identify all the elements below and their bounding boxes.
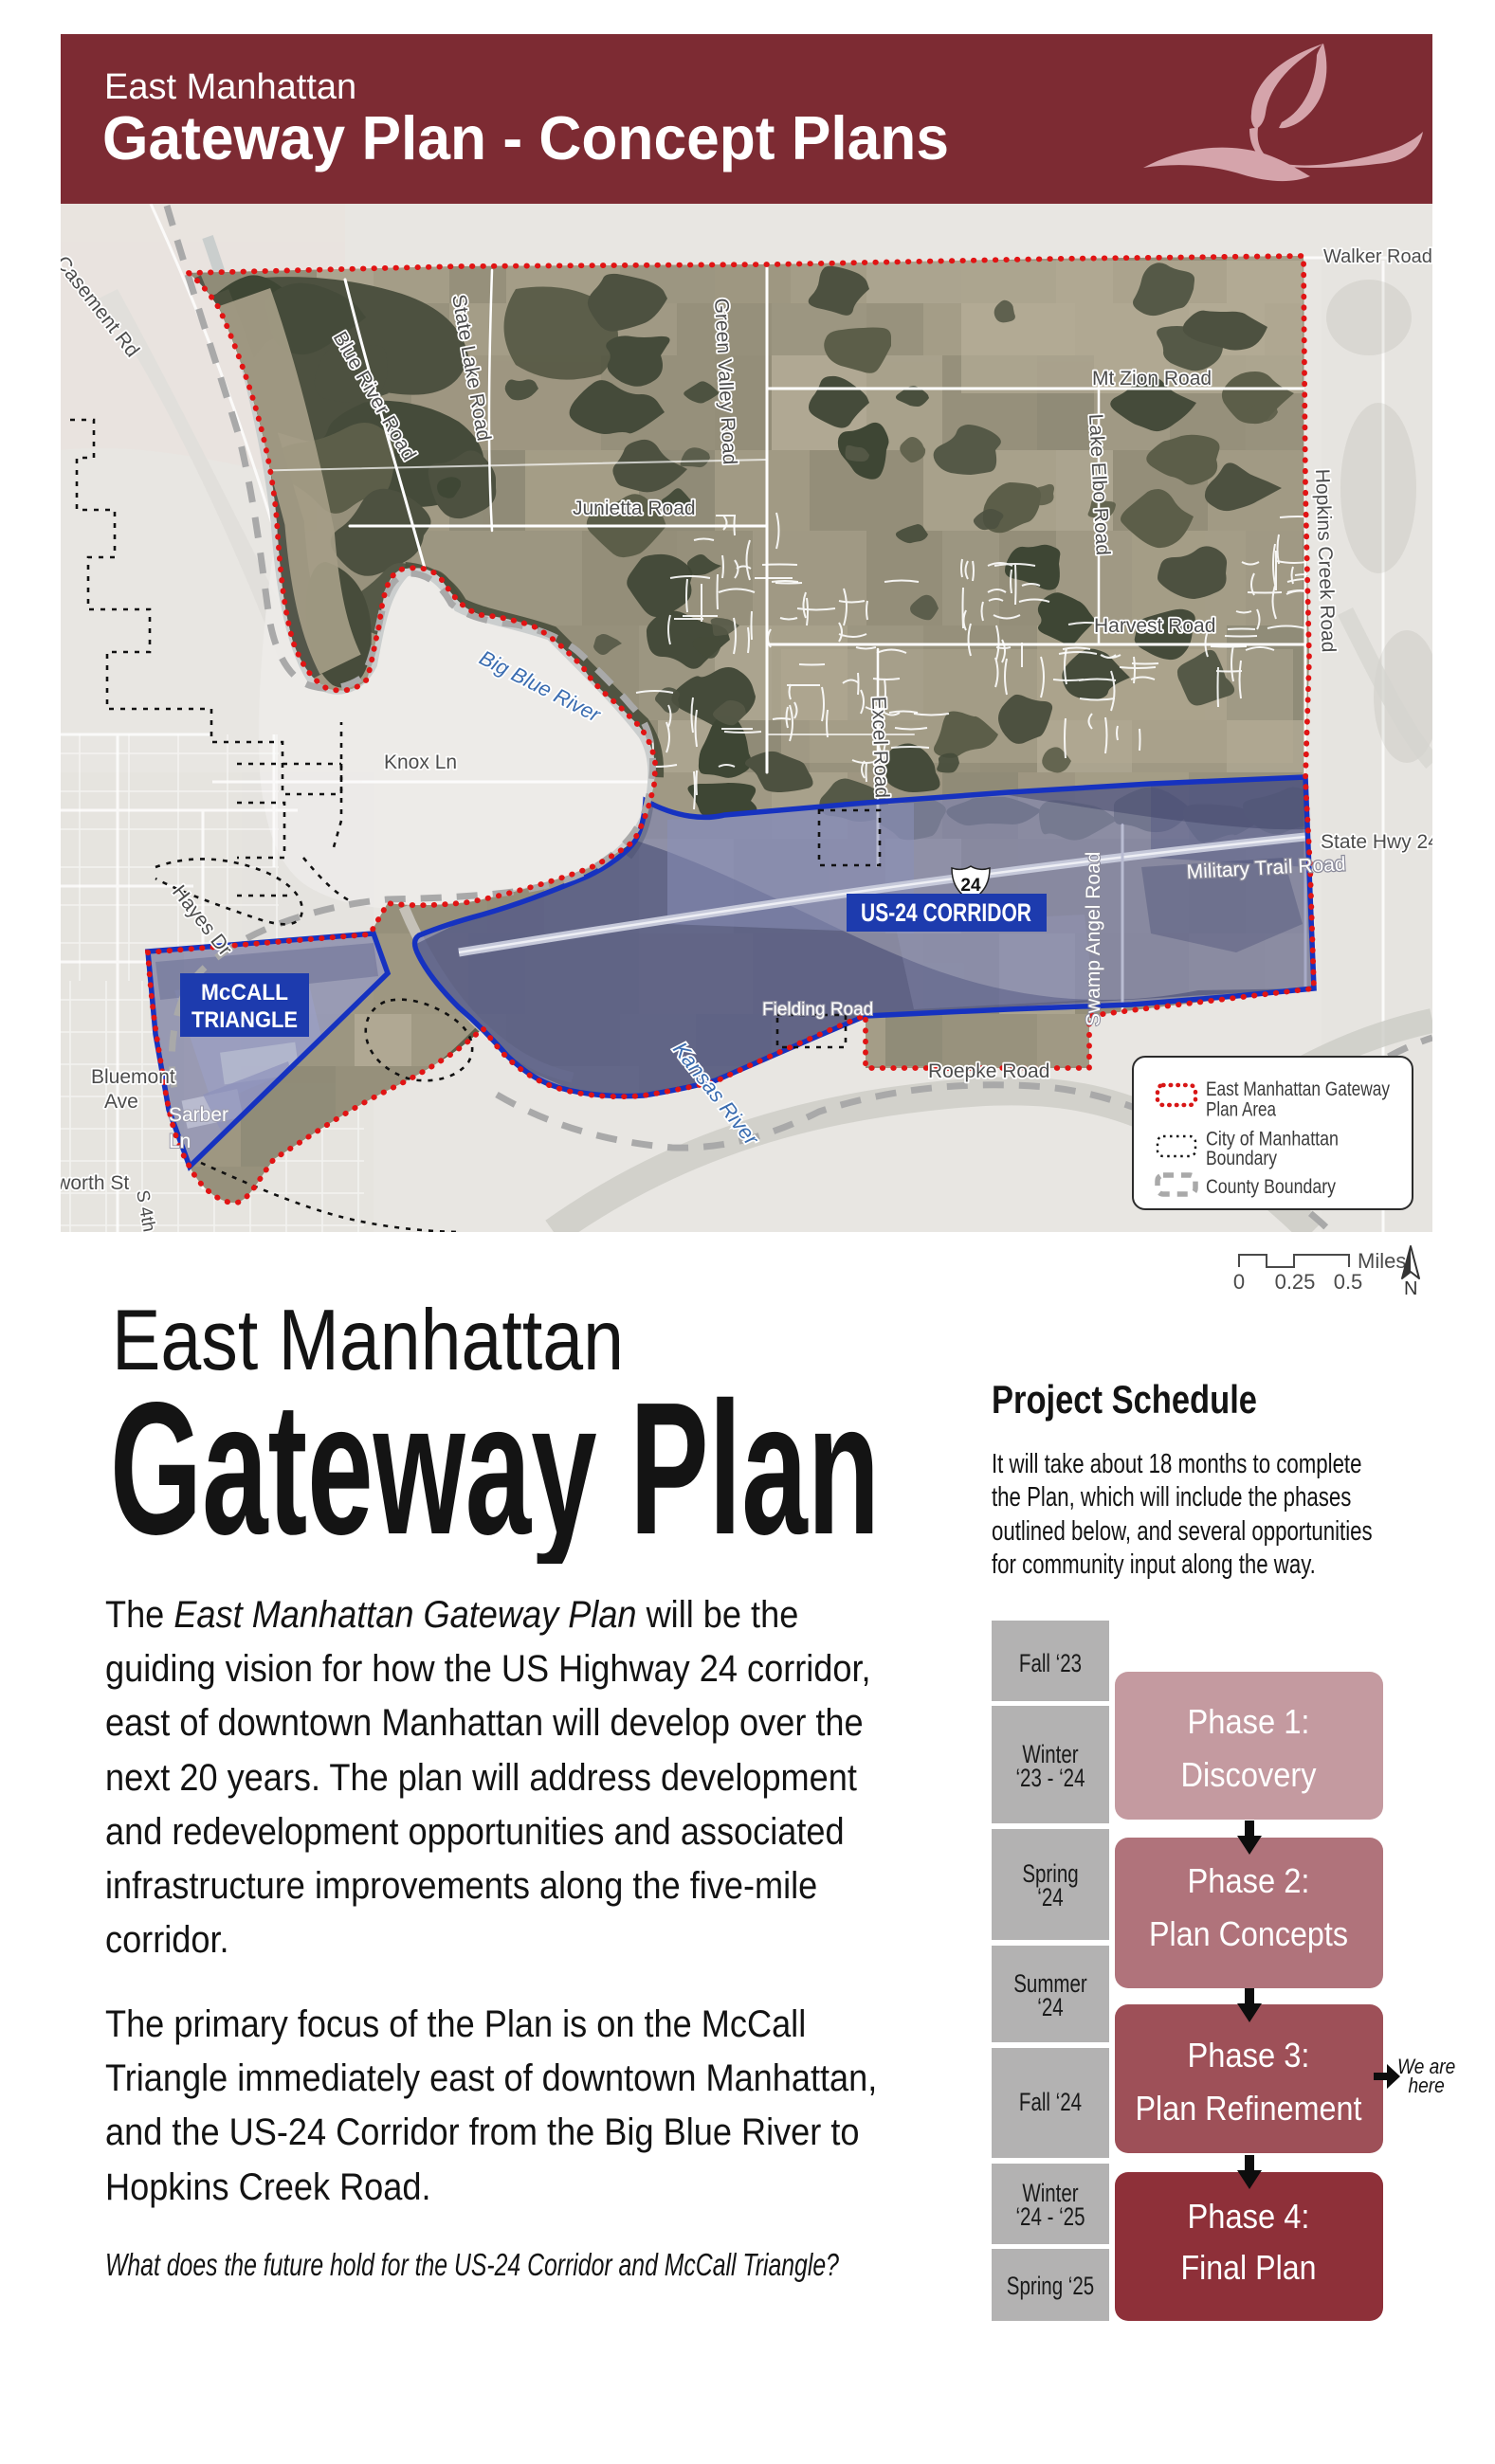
svg-text:Project Schedule: Project Schedule [992,1377,1257,1422]
svg-text:Junietta Road: Junietta Road [573,498,696,519]
svg-text:Discovery: Discovery [1181,1755,1317,1794]
svg-text:Walker Road: Walker Road [1323,246,1432,267]
svg-text:Gateway Plan: Gateway Plan [110,1365,880,1564]
svg-text:US-24 CORRIDOR: US-24 CORRIDOR [861,898,1031,927]
svg-text:N: N [1404,1278,1417,1297]
svg-text:Gateway Plan - Concept Plans: Gateway Plan - Concept Plans [102,106,949,172]
svg-text:0.25: 0.25 [1275,1270,1316,1294]
svg-text:Excel Road: Excel Road [867,696,893,798]
svg-text:State Hwy 24: State Hwy 24 [1321,831,1432,853]
svg-text:Harvest Road: Harvest Road [1094,615,1215,637]
svg-text:TRIANGLE: TRIANGLE [191,1007,298,1033]
svg-text:24: 24 [960,876,981,896]
svg-text:Boundary: Boundary [1206,1148,1277,1169]
svg-text:Swamp Angel Road: Swamp Angel Road [1083,852,1104,1026]
svg-text:Final Plan: Final Plan [1181,2248,1317,2287]
svg-text:Plan Refinement: Plan Refinement [1136,2089,1362,2128]
svg-text:Phase 1:: Phase 1: [1188,1702,1310,1741]
svg-text:0: 0 [1233,1270,1245,1294]
svg-text:Fielding Road: Fielding Road [762,1000,873,1020]
svg-text:East Manhattan Gateway: East Manhattan Gateway [1206,1078,1390,1100]
svg-text:Roepke Road: Roepke Road [928,1060,1049,1082]
svg-text:Phase 4:: Phase 4: [1188,2197,1310,2236]
svg-text:Plan Concepts: Plan Concepts [1149,1914,1348,1953]
svg-text:County Boundary: County Boundary [1206,1176,1336,1198]
svg-text:Plan Area: Plan Area [1206,1099,1276,1121]
svg-text:Mt Zion Road: Mt Zion Road [1092,368,1212,390]
svg-text:Phase 2:: Phase 2: [1188,1861,1310,1900]
svg-text:eavenworth St: eavenworth St [61,1172,129,1194]
svg-text:Knox Ln: Knox Ln [384,752,457,773]
svg-text:0.5: 0.5 [1334,1270,1363,1294]
svg-text:Phase 3:: Phase 3: [1188,2036,1310,2074]
svg-text:McCALL: McCALL [201,980,288,1006]
